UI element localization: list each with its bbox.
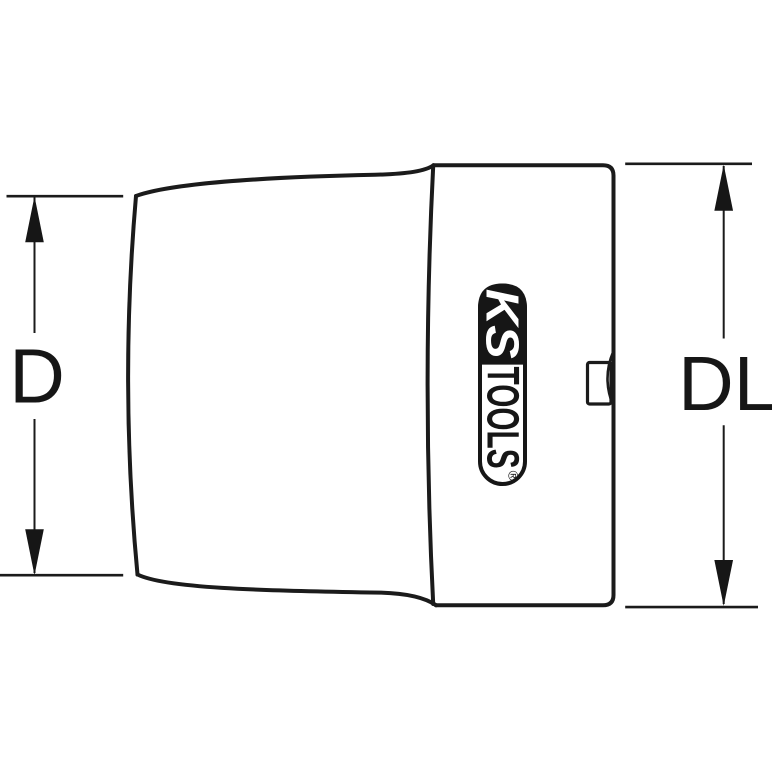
svg-text:TOOLS: TOOLS — [478, 367, 529, 469]
svg-text:DL: DL — [678, 341, 772, 427]
svg-text:®: ® — [506, 471, 522, 482]
svg-text:KS: KS — [477, 289, 529, 359]
svg-text:D: D — [9, 334, 65, 420]
